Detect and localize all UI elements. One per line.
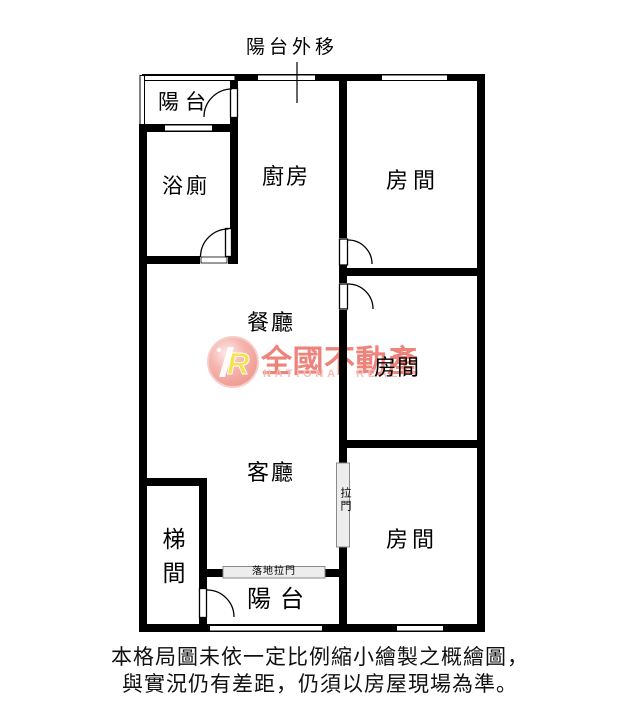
- room-label-stairwell: 梯間: [160, 527, 183, 595]
- room-label-balcony-bottom: 陽台: [247, 588, 313, 612]
- room-label-bedroom-bottom: 房間: [386, 529, 438, 551]
- room-label-bedroom-top: 房間: [386, 170, 440, 192]
- sliding-door-label: 拉門: [336, 487, 350, 513]
- room-label-dining: 餐廳: [247, 312, 295, 334]
- room-label-kitchen: 廚房: [262, 166, 310, 188]
- room-labels: 陽台外移 陽台 浴廁 廚房 房間 餐廳 房間 客廳 房間 梯間 陽台 拉門 落地…: [0, 0, 640, 718]
- annotation-balcony-moved: 陽台外移: [246, 38, 338, 57]
- room-label-living: 客廳: [247, 462, 295, 484]
- floor-sliding-door-label: 落地拉門: [223, 567, 325, 577]
- floorplan-page: R 全國不動產 NATIONAL REALTY: [0, 0, 640, 718]
- room-label-bedroom-mid: 房間: [374, 357, 420, 379]
- room-label-balcony-top: 陽台: [158, 92, 212, 113]
- disclaimer-line-1: 本格局圖未依一定比例縮小繪製之概繪圖，: [0, 644, 640, 671]
- disclaimer-text: 本格局圖未依一定比例縮小繪製之概繪圖， 與實況仍有差距，仍須以房屋現場為準。: [0, 644, 640, 698]
- room-label-bathroom: 浴廁: [162, 176, 210, 197]
- disclaimer-line-2: 與實況仍有差距，仍須以房屋現場為準。: [0, 671, 640, 698]
